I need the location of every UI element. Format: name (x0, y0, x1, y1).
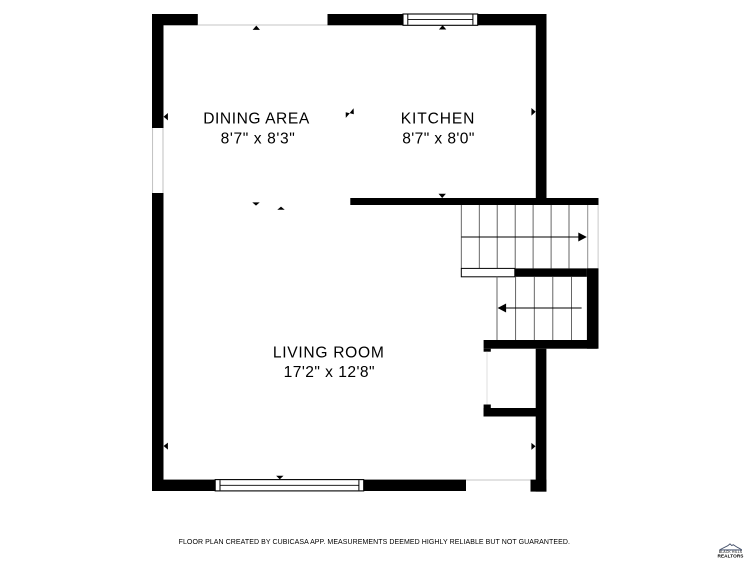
svg-text:8'7" x 8'0": 8'7" x 8'0" (402, 131, 475, 148)
svg-text:KITCHEN: KITCHEN (401, 111, 475, 128)
svg-text:REALTORS: REALTORS (718, 553, 744, 558)
svg-text:17'2" x 12'8": 17'2" x 12'8" (284, 364, 375, 381)
svg-text:LIVING ROOM: LIVING ROOM (273, 345, 385, 362)
svg-text:FLOOR PLAN CREATED BY CUBICASA: FLOOR PLAN CREATED BY CUBICASA APP. MEAS… (179, 539, 570, 546)
svg-text:DINING AREA: DINING AREA (203, 111, 310, 128)
svg-text:8'7" x 8'3": 8'7" x 8'3" (221, 131, 296, 148)
